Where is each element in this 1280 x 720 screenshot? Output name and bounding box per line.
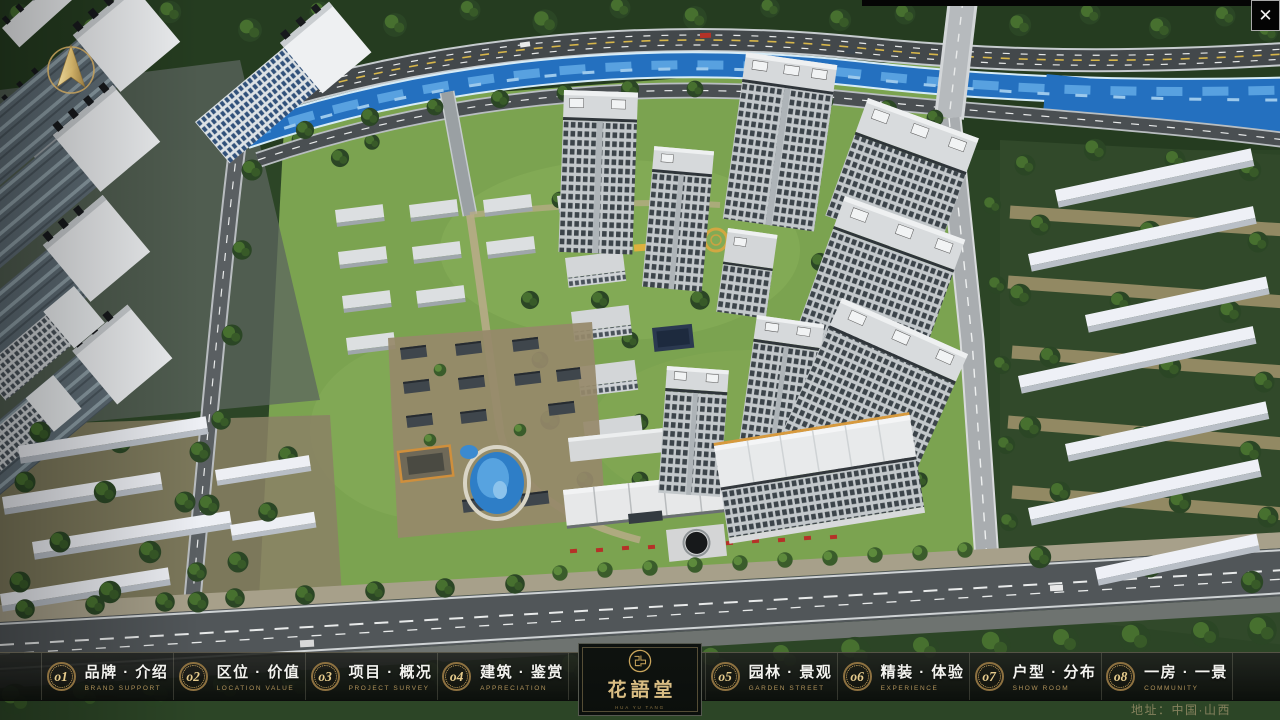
compass-north-icon <box>45 42 97 98</box>
close-icon: ✕ <box>1251 0 1280 31</box>
nav-item-title: 建筑 · 鉴赏 <box>480 661 564 682</box>
nav-item-room-view[interactable]: o8 一房 · 一景COMMUNITY <box>1101 653 1233 700</box>
nav-item-title: 一房 · 一景 <box>1144 661 1228 682</box>
number-badge: o6 <box>843 662 872 691</box>
nav-item-subtitle: PROJECT SURVEY <box>349 685 430 692</box>
edge-shading <box>0 0 200 720</box>
close-button[interactable]: ✕ <box>1251 0 1280 31</box>
number-badge: o7 <box>975 662 1004 691</box>
number-badge: o3 <box>311 662 340 691</box>
number-badge: o5 <box>711 662 740 691</box>
project-logo-panel[interactable]: 花語堂 HUA YU TANG <box>578 643 702 716</box>
number-badge: o1 <box>47 662 76 691</box>
nav-item-subtitle: EXPERIENCE <box>881 685 939 692</box>
top-edge-strip <box>862 0 1280 6</box>
nav-item-architecture[interactable]: o4 建筑 · 鉴赏APPRECIATION <box>437 653 569 700</box>
nav-item-floorplan-distribution[interactable]: o7 户型 · 分布SHOW ROOM <box>969 653 1101 700</box>
nav-item-subtitle: LOCATION VALUE <box>217 685 295 692</box>
project-name-tagline: HUA YU TANG <box>615 705 665 710</box>
nav-item-subtitle: BRAND SUPPORT <box>85 685 162 692</box>
huayutang-seal-icon <box>628 649 652 673</box>
nav-item-title: 项目 · 概况 <box>349 661 433 682</box>
nav-item-project-overview[interactable]: o3 项目 · 概况PROJECT SURVEY <box>305 653 437 700</box>
sales-app-window: ✕ o1 品牌 · 介绍BRAND SUPPORT o2 区位 · 价值LOCA… <box>0 0 1280 720</box>
nav-item-subtitle: SHOW ROOM <box>1013 685 1070 692</box>
nav-item-subtitle: APPRECIATION <box>480 685 547 692</box>
number-badge: o8 <box>1106 662 1135 691</box>
nav-item-interior-experience[interactable]: o6 精装 · 体验EXPERIENCE <box>837 653 969 700</box>
nav-item-title: 园林 · 景观 <box>749 661 833 682</box>
number-badge: o4 <box>442 662 471 691</box>
nav-item-title: 精装 · 体验 <box>881 661 965 682</box>
nav-item-subtitle: COMMUNITY <box>1144 685 1198 692</box>
nav-item-location-value[interactable]: o2 区位 · 价值LOCATION VALUE <box>173 653 305 700</box>
number-badge: o2 <box>179 662 208 691</box>
nav-item-landscape[interactable]: o5 园林 · 景观GARDEN STREET <box>705 653 837 700</box>
nav-item-title: 户型 · 分布 <box>1013 661 1097 682</box>
nav-item-brand-intro[interactable]: o1 品牌 · 介绍BRAND SUPPORT <box>41 653 173 700</box>
nav-item-title: 品牌 · 介绍 <box>85 661 169 682</box>
nav-item-title: 区位 · 价值 <box>217 661 301 682</box>
aerial-site-map[interactable] <box>0 0 1280 720</box>
nav-item-subtitle: GARDEN STREET <box>749 685 825 692</box>
project-address: 地址：中国·山西 <box>1131 701 1231 718</box>
project-name: 花語堂 <box>603 675 676 702</box>
